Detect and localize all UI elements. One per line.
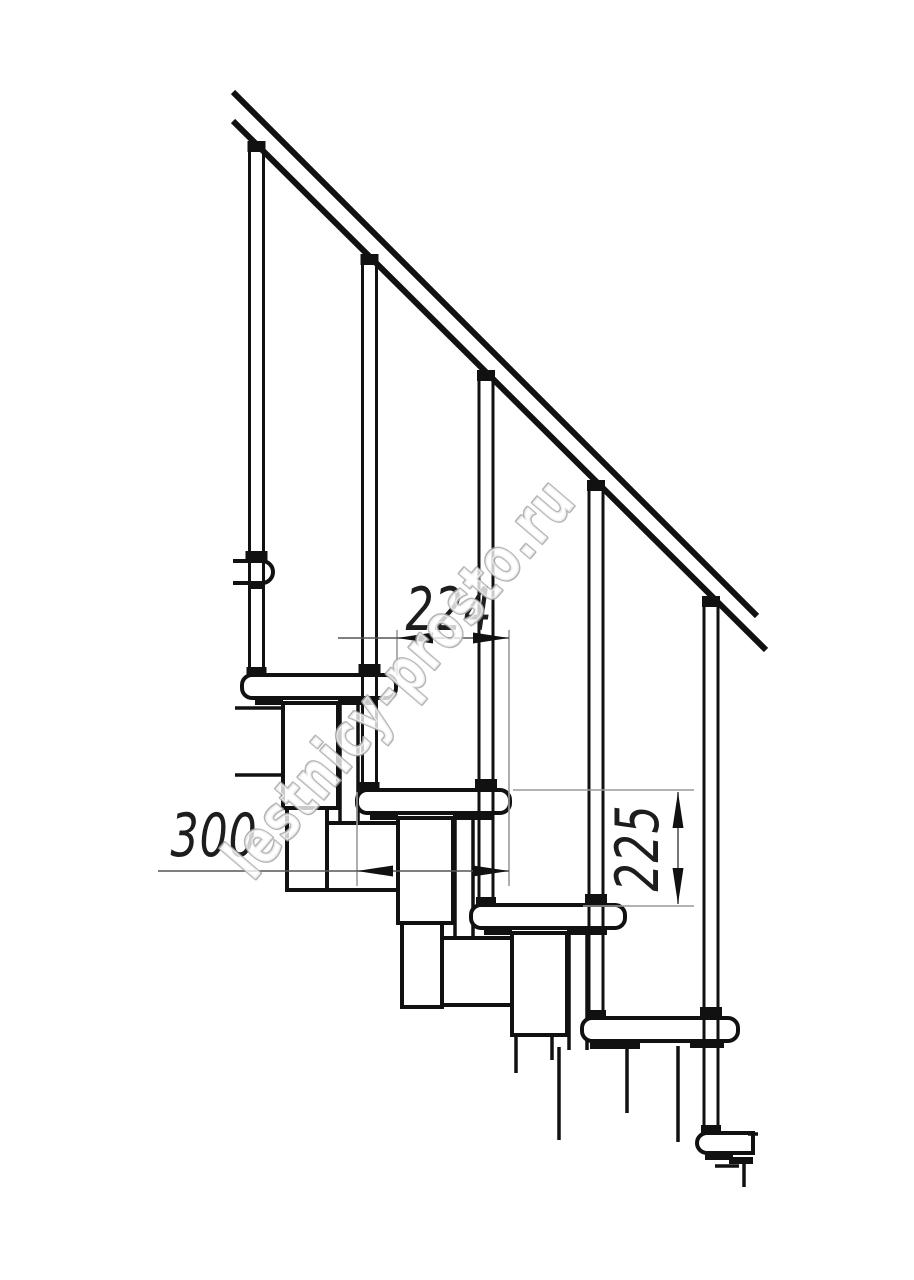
module-wide-box xyxy=(442,938,517,1005)
tread-mount xyxy=(370,813,398,820)
arrowhead-up xyxy=(673,792,684,828)
baluster-foot-cap xyxy=(476,897,496,905)
tread-mount xyxy=(453,812,493,820)
tread-mount xyxy=(590,1041,640,1049)
tread-5-fragment xyxy=(697,1133,753,1153)
tread-mount xyxy=(255,698,283,705)
arrowhead-right xyxy=(473,866,509,877)
dimension-label-rise: 225 xyxy=(603,805,672,892)
baluster-collar xyxy=(248,583,265,589)
baluster-collar xyxy=(475,779,497,790)
dimension-225: 225 xyxy=(513,790,694,906)
baluster-collar xyxy=(585,894,607,905)
baluster-1 xyxy=(248,141,266,675)
staircase-drawing-canvas: 224 300 225 lestnicy-prosto.ru xyxy=(0,0,914,1280)
baluster-5 xyxy=(702,596,720,1133)
baluster-collar xyxy=(700,1007,722,1018)
tread-mount xyxy=(484,928,512,935)
tread-mount xyxy=(729,1157,753,1164)
baluster-rail-connector xyxy=(477,370,495,381)
baluster-collar xyxy=(246,551,268,562)
baluster-foot-cap xyxy=(586,1010,606,1018)
baluster-rail-connector xyxy=(702,596,720,607)
tread-4 xyxy=(582,1018,738,1041)
module-lower-box xyxy=(402,923,442,1007)
baluster-foot-cap xyxy=(701,1125,721,1133)
tread-mount xyxy=(690,1040,724,1048)
module-wide-box xyxy=(327,823,402,890)
baluster-rail-connector xyxy=(361,254,379,265)
module-upper-box xyxy=(512,933,567,1035)
tread-mount xyxy=(705,1153,733,1160)
tread-2 xyxy=(357,790,510,813)
module-unit-3 xyxy=(512,930,587,1140)
tread-0-fragment xyxy=(233,561,273,583)
module-unit-4 xyxy=(627,1046,678,1142)
staircase-drawing: 224 300 225 lestnicy-prosto.ru xyxy=(0,0,914,1280)
baluster-foot-cap xyxy=(247,667,267,675)
baluster-4 xyxy=(587,480,605,1018)
arrowhead-down xyxy=(673,868,684,904)
baluster-foot-cap xyxy=(360,782,380,790)
baluster-rail-connector xyxy=(587,480,605,491)
tread-mount xyxy=(567,927,607,935)
baluster-rail-connector xyxy=(248,141,266,152)
